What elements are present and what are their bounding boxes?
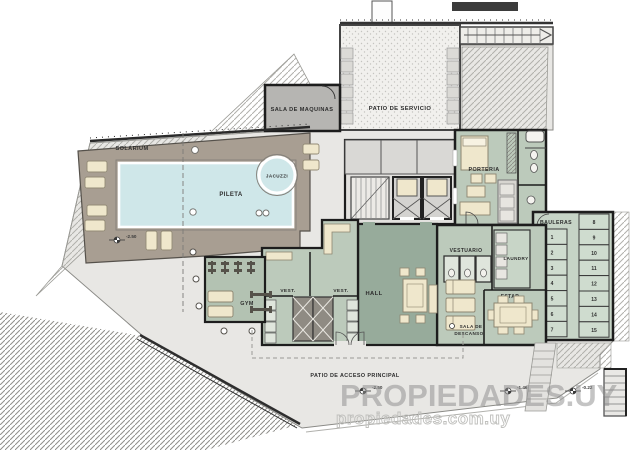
hatch-southeast-block (557, 343, 611, 368)
label-sala-descanso-1: SALA DE (460, 324, 483, 329)
label-porteria: PORTERIA (468, 167, 499, 173)
hatch-northeast (462, 47, 548, 130)
label-jacuzzi: JACUZZI (266, 174, 288, 179)
label-vest-right: VEST. (333, 288, 348, 294)
baulera-number: 15 (591, 328, 597, 334)
baulera-number: 11 (591, 266, 597, 272)
keynote-circle (450, 324, 455, 329)
floor-plan: PATIO DE SERVICIO SALA DE MAQUINAS SOLAR… (0, 0, 639, 450)
label-sala-maquinas: SALA DE MAQUINAS (271, 107, 334, 113)
hall-door-gap-2 (420, 222, 432, 226)
baulera-number: 9 (593, 235, 596, 241)
elevation-value: -2.50 (126, 234, 137, 239)
baulera-number: 1 (551, 235, 554, 241)
baulera-number: 5 (551, 297, 554, 303)
patio-servicio-area (340, 25, 460, 130)
porteria-bed (461, 136, 488, 170)
label-pileta: PILETA (219, 192, 243, 198)
porteria-window-2 (453, 188, 457, 204)
ramp-northeast (460, 27, 553, 44)
label-sala-descanso-2: DESCANSO (454, 331, 483, 336)
vertical-core (345, 140, 455, 224)
baulera-number: 8 (593, 220, 596, 226)
label-vest-left: VEST. (280, 288, 295, 294)
watermark: PROPIEDADES.UY propiedades.com.uy (336, 378, 618, 428)
watermark-main: PROPIEDADES.UY (340, 378, 618, 413)
laundry-room: LAUNDRY (494, 230, 530, 288)
elevator-right (423, 177, 451, 220)
label-laundry: LAUNDRY (503, 256, 528, 261)
baulera-number: 6 (551, 312, 554, 318)
staircase (351, 177, 389, 219)
elevator-left (393, 177, 421, 220)
porteria-window-1 (453, 150, 457, 166)
baulera-number: 13 (591, 297, 597, 303)
watermark-sub: propiedades.com.uy (336, 409, 510, 428)
label-solarium: SOLARIUM (115, 146, 148, 152)
baulera-number: 12 (591, 282, 597, 288)
hall: HALL (358, 222, 437, 345)
vest-bench (266, 252, 292, 260)
closet-hatch (507, 133, 516, 173)
label-hall: HALL (365, 291, 382, 297)
hatch-east-strip (613, 212, 629, 341)
shaft-row (345, 140, 455, 174)
baulera-number: 2 (551, 250, 554, 256)
stairs-down-block (293, 297, 333, 341)
floor-plan-canvas: PATIO DE SERVICIO SALA DE MAQUINAS SOLAR… (0, 0, 639, 450)
baulera-number: 3 (551, 266, 554, 272)
hall-door-gap-1 (363, 222, 375, 226)
baulera-number: 10 (591, 251, 597, 257)
porteria-kitchenette (498, 180, 517, 223)
top-wall-bar (452, 2, 518, 11)
label-vestuario: VESTUARIO (450, 248, 483, 254)
label-patio-servicio: PATIO DE SERVICIO (369, 106, 432, 112)
gym: GYM (205, 257, 272, 322)
baulera-number: 7 (551, 327, 554, 333)
baulera-number: 14 (591, 312, 597, 318)
amenities-east-block: VESTUARIO LAUNDRY (437, 225, 546, 345)
baulera-number: 4 (551, 281, 554, 287)
vestuario-stalls (444, 256, 491, 282)
